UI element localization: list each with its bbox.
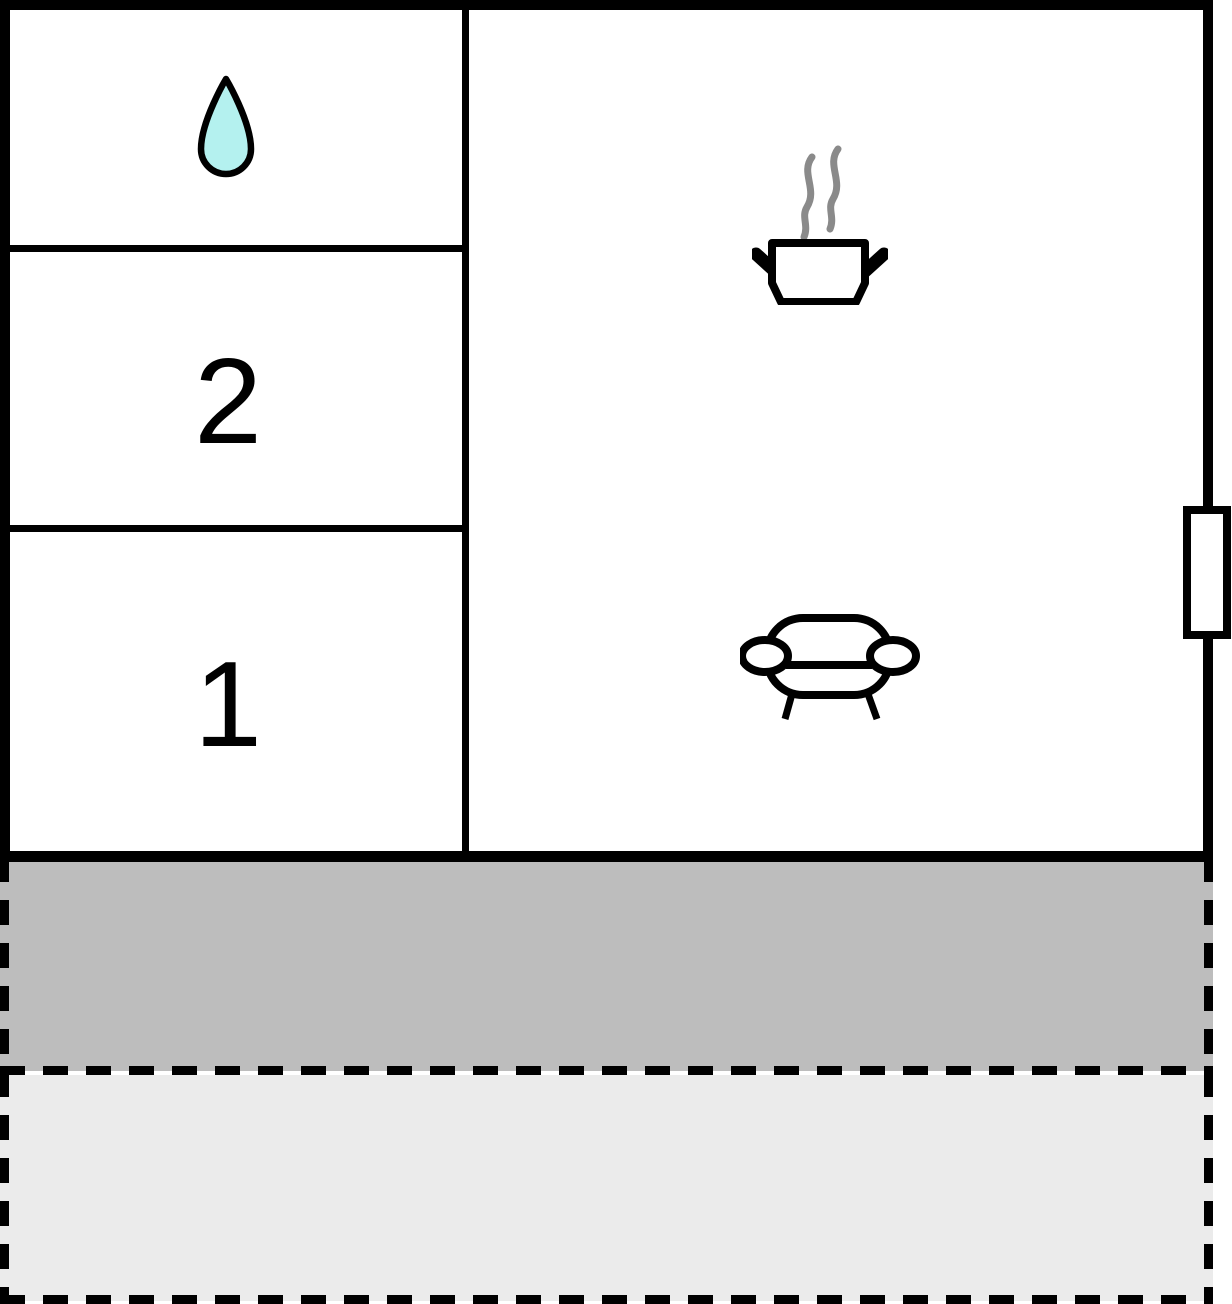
terrace-upper-band (0, 862, 1213, 1071)
wall-divider-bathroom-bedroom2 (0, 245, 469, 252)
room-living-kitchen (469, 10, 1203, 851)
cooking-pot-icon (752, 145, 888, 310)
wall-left (0, 0, 10, 862)
window-icon (1183, 506, 1231, 639)
terrace-lower-band (0, 1075, 1213, 1301)
wall-bottom (0, 851, 1213, 862)
wall-top (0, 0, 1213, 10)
floor-plan-canvas: 2 1 (0, 0, 1232, 1304)
terrace-area (0, 857, 1232, 1304)
room-2-label: 2 (194, 340, 262, 462)
room-bedroom-1: 1 (10, 532, 462, 851)
wall-right (1203, 0, 1213, 862)
wall-middle-vertical (462, 0, 469, 862)
floor-plan: 2 1 (0, 0, 1213, 862)
sofa-icon (740, 614, 920, 729)
room-bedroom-2: 2 (10, 252, 462, 525)
water-drop-icon (194, 74, 258, 191)
wall-divider-bedroom2-bedroom1 (0, 525, 469, 532)
steam-icon (804, 149, 838, 237)
room-1-label: 1 (194, 643, 262, 765)
room-bathroom (10, 10, 462, 245)
